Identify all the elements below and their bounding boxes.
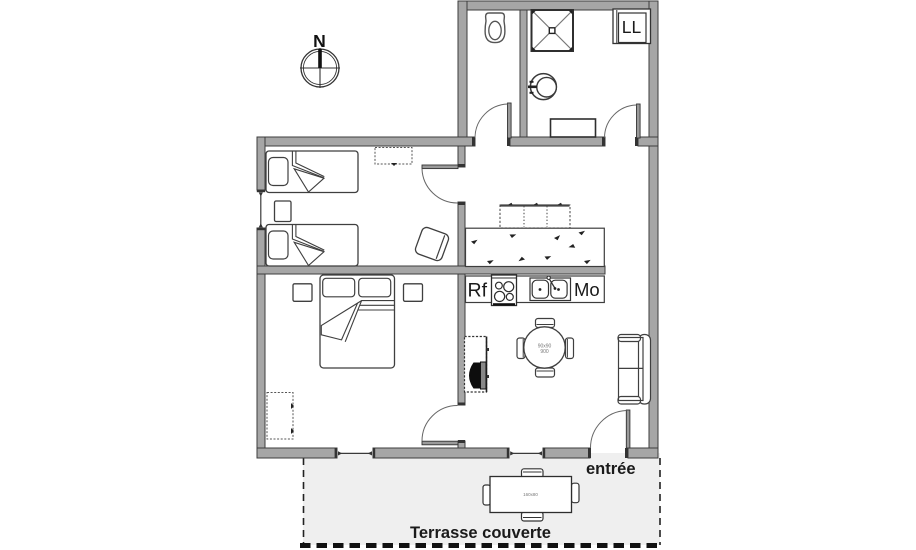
svg-text:N: N [313, 31, 326, 51]
svg-text:LL: LL [622, 17, 642, 37]
svg-text:entrée: entrée [586, 460, 636, 478]
svg-text:Terrasse couverte: Terrasse couverte [410, 524, 551, 542]
svg-text:Rf: Rf [468, 280, 488, 302]
svg-text:160x80: 160x80 [523, 492, 538, 497]
svg-text:900: 900 [540, 349, 549, 355]
svg-text:Mo: Mo [574, 279, 600, 300]
